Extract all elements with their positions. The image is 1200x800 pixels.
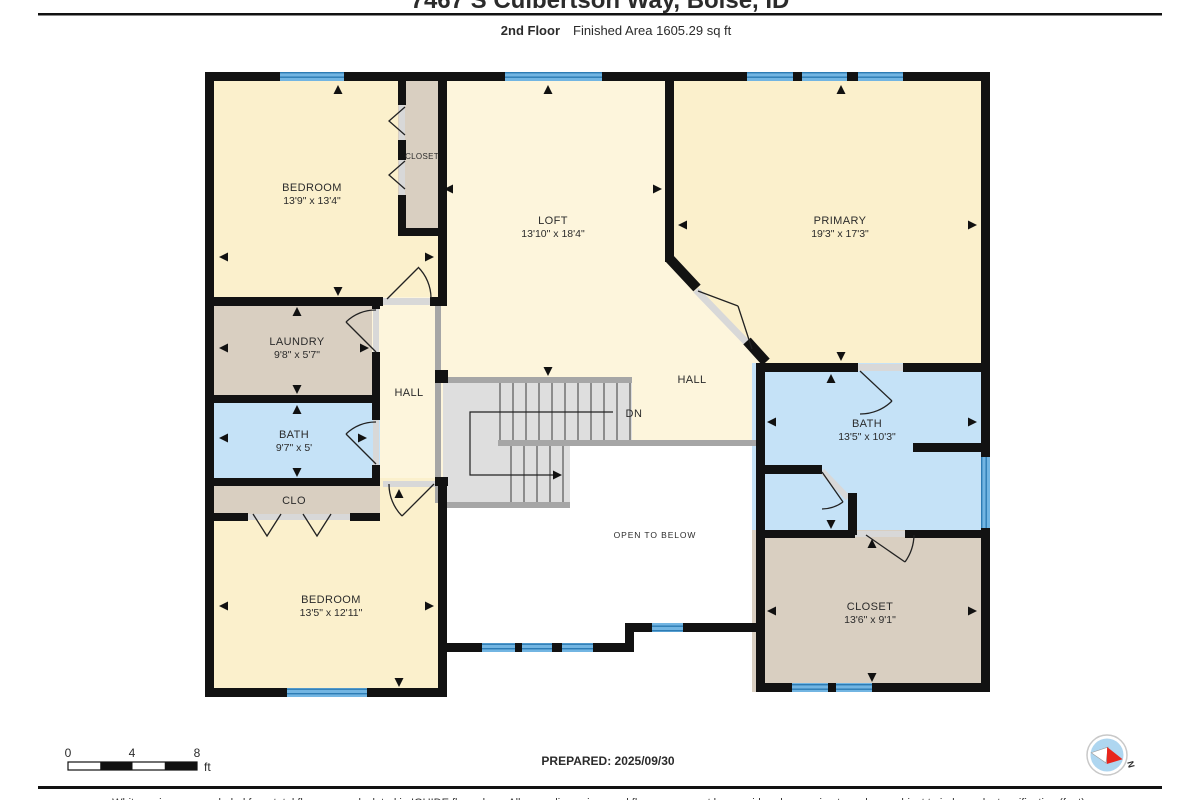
- dims-loft: 13'10" x 18'4": [521, 228, 585, 240]
- label-bath-primary: BATH: [852, 418, 882, 430]
- window: [858, 72, 903, 81]
- dims-closet-primary: 13'6" x 9'1": [844, 614, 896, 626]
- label-open-to-below: OPEN TO BELOW: [614, 530, 697, 540]
- compass-icon: N: [1087, 735, 1137, 775]
- dims-bath-primary: 13'5" x 10'3": [838, 431, 896, 443]
- dims-laundry: 9'8" x 5'7": [274, 349, 320, 361]
- floor-plan-page: 7467 S Culbertson Way, Boise, ID 2nd Flo…: [0, 0, 1200, 800]
- footer: 0 4 8 ft PREPARED: 2025/09/30 N White re…: [38, 735, 1162, 800]
- dims-primary: 19'3" x 17'3": [811, 228, 869, 240]
- label-closet-primary: CLOSET: [847, 601, 893, 613]
- floor-label: 2nd Floor: [501, 23, 560, 38]
- window: [802, 72, 847, 81]
- prepared-date-label: PREPARED: 2025/09/30: [541, 754, 675, 768]
- scale-tick-0: 0: [65, 746, 72, 760]
- window: [562, 643, 593, 652]
- scale-tick-4: 4: [129, 746, 136, 760]
- window: [792, 683, 828, 692]
- window: [505, 72, 602, 81]
- label-primary: PRIMARY: [814, 215, 867, 227]
- dims-bedroom-lower: 13'5" x 12'11": [300, 607, 363, 619]
- label-closet-upper: CLOSET: [405, 152, 439, 161]
- scale-tick-8: 8: [194, 746, 201, 760]
- label-bath-west: BATH: [279, 429, 309, 441]
- dims-bath-west: 9'7" x 5': [276, 442, 312, 454]
- window: [482, 643, 515, 652]
- label-stairs-down: DN: [626, 408, 643, 420]
- scale-unit: ft: [204, 760, 211, 774]
- label-laundry: LAUNDRY: [269, 336, 324, 348]
- scale-bar: 0 4 8 ft: [65, 746, 212, 774]
- header-rule: [38, 13, 1162, 16]
- dims-bedroom-upper: 13'9" x 13'4": [283, 195, 341, 207]
- window: [280, 72, 344, 81]
- label-clo: CLO: [282, 495, 306, 507]
- window: [836, 683, 872, 692]
- window: [981, 457, 990, 528]
- floor-plan-canvas: 7467 S Culbertson Way, Boise, ID 2nd Flo…: [0, 0, 1200, 800]
- compass-north-label: N: [1125, 760, 1136, 769]
- footer-rule: [38, 786, 1162, 789]
- page-title: 7467 S Culbertson Way, Boise, ID: [411, 0, 790, 14]
- label-hall-west: HALL: [394, 387, 423, 399]
- label-hall-east: HALL: [677, 374, 706, 386]
- window: [747, 72, 793, 81]
- label-bedroom-upper: BEDROOM: [282, 182, 342, 194]
- window: [522, 643, 552, 652]
- label-bedroom-lower: BEDROOM: [301, 594, 361, 606]
- window: [652, 623, 683, 632]
- header: 7467 S Culbertson Way, Boise, ID 2nd Flo…: [38, 0, 1162, 38]
- label-loft: LOFT: [538, 215, 568, 227]
- window: [287, 688, 367, 697]
- finished-area-label: Finished Area 1605.29 sq ft: [573, 23, 732, 38]
